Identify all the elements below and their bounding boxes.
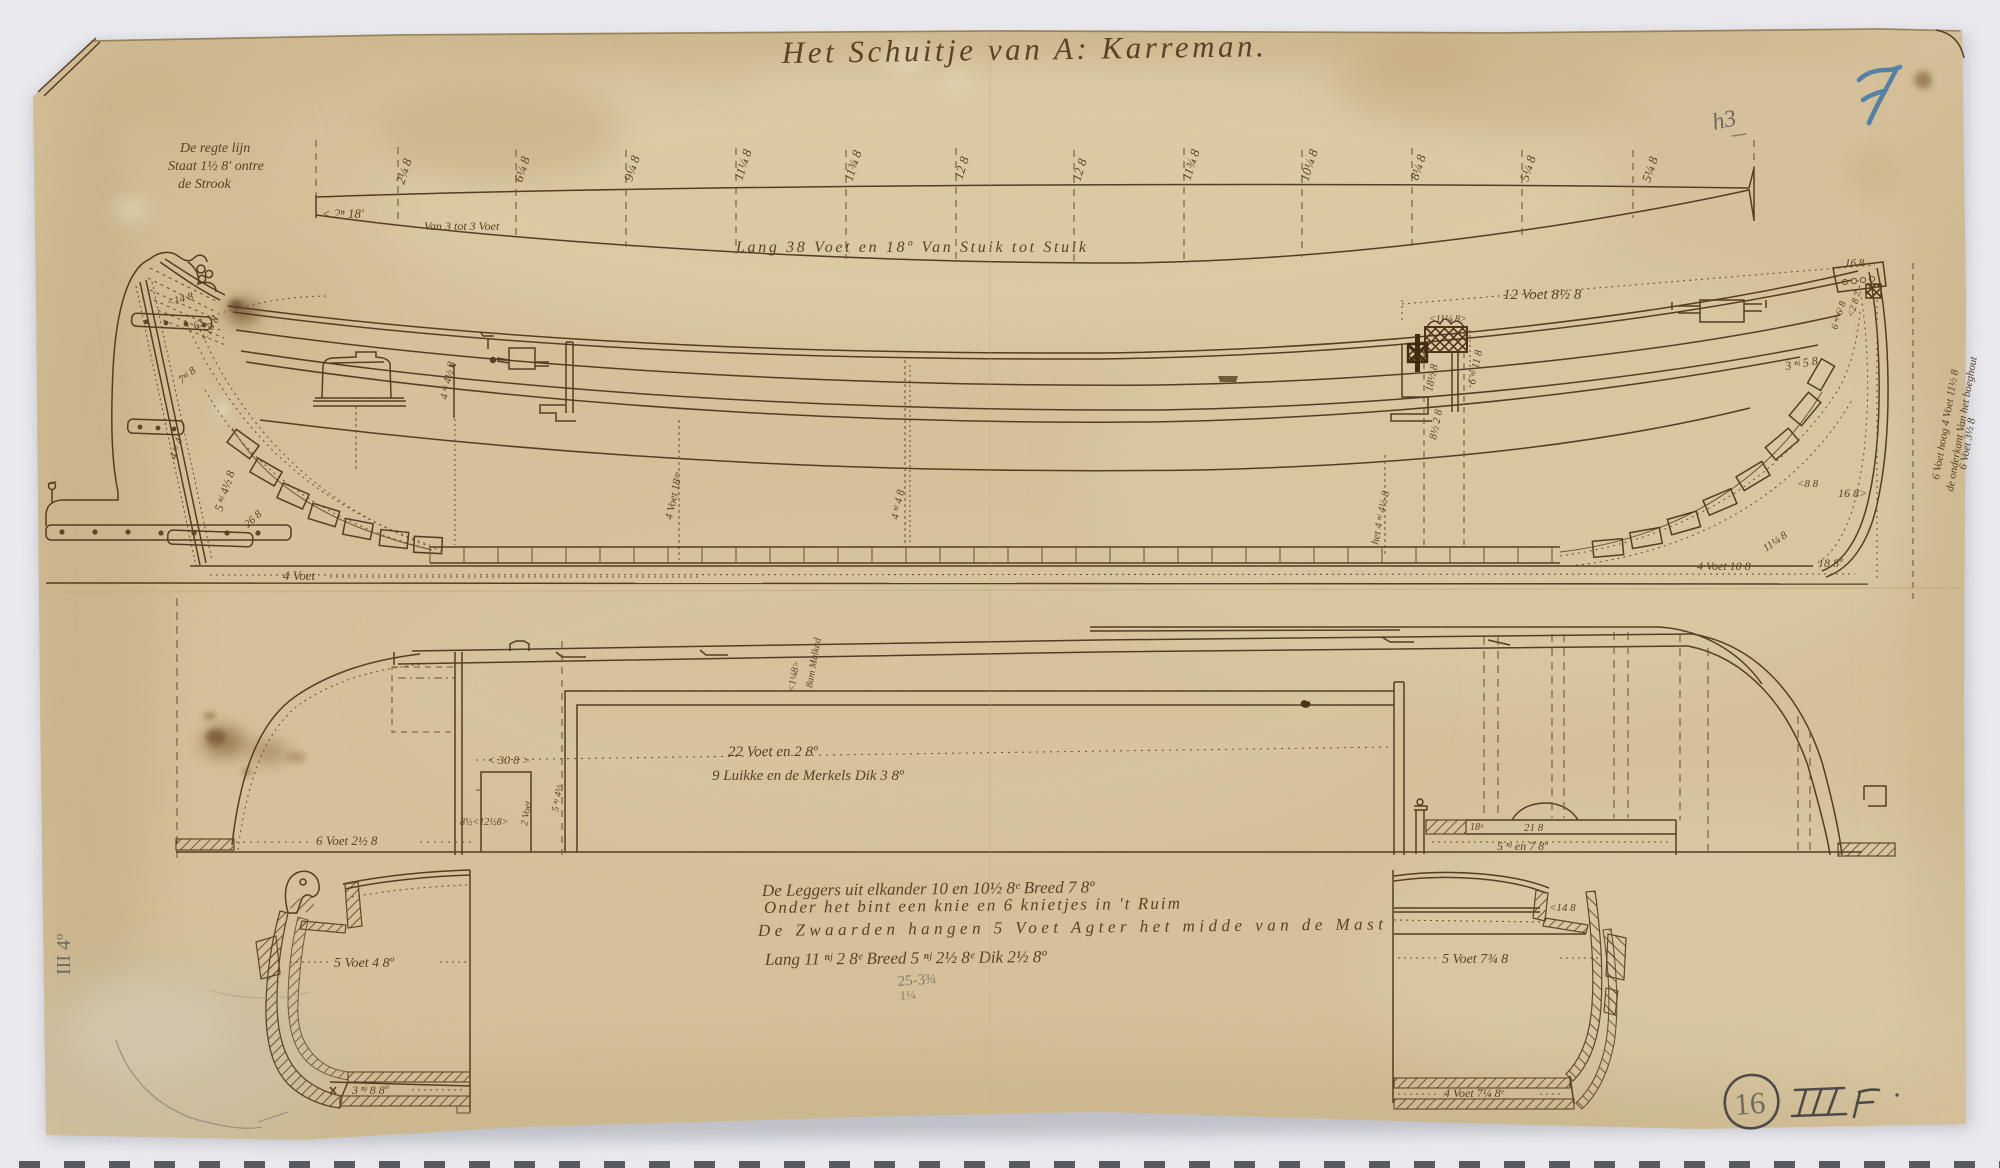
svg-text:18 8º: 18 8º: [1818, 556, 1843, 570]
svg-text:Lang 11 ⁿʲ 2 8ᵉ Breed 5 ⁿʲ 2½: Lang 11 ⁿʲ 2 8ᵉ Breed 5 ⁿʲ 2½ 8ᵉ Dik 2½ …: [764, 947, 1048, 969]
svg-text:1¼: 1¼: [899, 987, 917, 1003]
svg-text:5 Voet 4 8º: 5 Voet 4 8º: [334, 956, 395, 971]
svg-text:18ᵃ: 18ᵃ: [1470, 822, 1484, 833]
svg-text:6 Voet 2½ 8: 6 Voet 2½ 8: [316, 833, 378, 848]
svg-text:16: 16: [1733, 1085, 1766, 1122]
svg-text:De regte lijn: De regte lijn: [179, 141, 250, 156]
svg-text:12 Voet 8½ 8: 12 Voet 8½ 8: [1503, 287, 1582, 303]
svg-text:22 Voet en 2 8º: 22 Voet en 2 8º: [728, 744, 818, 760]
svg-text:21 8: 21 8: [1524, 822, 1544, 834]
svg-text:Van 3 tot 3 Voet: Van 3 tot 3 Voet: [424, 219, 500, 233]
svg-text:8½<12½8>: 8½<12½8>: [460, 817, 509, 828]
svg-text:16 8: 16 8: [1845, 257, 1865, 269]
svg-text:Staat 1½ 8' ontre: Staat 1½ 8' ontre: [168, 159, 264, 174]
svg-text:5 ⁿʲ en 7 8º: 5 ⁿʲ en 7 8º: [1497, 839, 1548, 853]
svg-text:<8 8: <8 8: [1797, 478, 1819, 490]
svg-text:3 ⁿʲ 8 8º: 3 ⁿʲ 8 8º: [351, 1083, 389, 1097]
svg-text:<14 8: <14 8: [1549, 902, 1576, 914]
svg-text:de Strook: de Strook: [178, 177, 232, 192]
svg-text:< 2ⁿ 18': < 2ⁿ 18': [322, 206, 364, 221]
svg-text:III 4º: III 4º: [53, 934, 75, 975]
svg-text:16 8>: 16 8>: [1838, 486, 1867, 500]
svg-text:4 Voet 7¼ 8ᵉ: 4 Voet 7¼ 8ᵉ: [1444, 1086, 1505, 1100]
svg-text:Lang 38 Voet en 18º Van Stuik: Lang 38 Voet en 18º Van Stuik tot Stuik: [735, 239, 1087, 256]
svg-text:9 Luikke en de Merkels Dik 3 8: 9 Luikke en de Merkels Dik 3 8º: [712, 768, 904, 784]
svg-text:4 Voet: 4 Voet: [283, 568, 316, 583]
svg-text:5 Voet 7¾ 8: 5 Voet 7¾ 8: [1442, 952, 1508, 967]
svg-text:< 30 8 >: < 30 8 >: [487, 753, 530, 767]
svg-text:<11¼ 8>: <11¼ 8>: [1429, 314, 1467, 325]
